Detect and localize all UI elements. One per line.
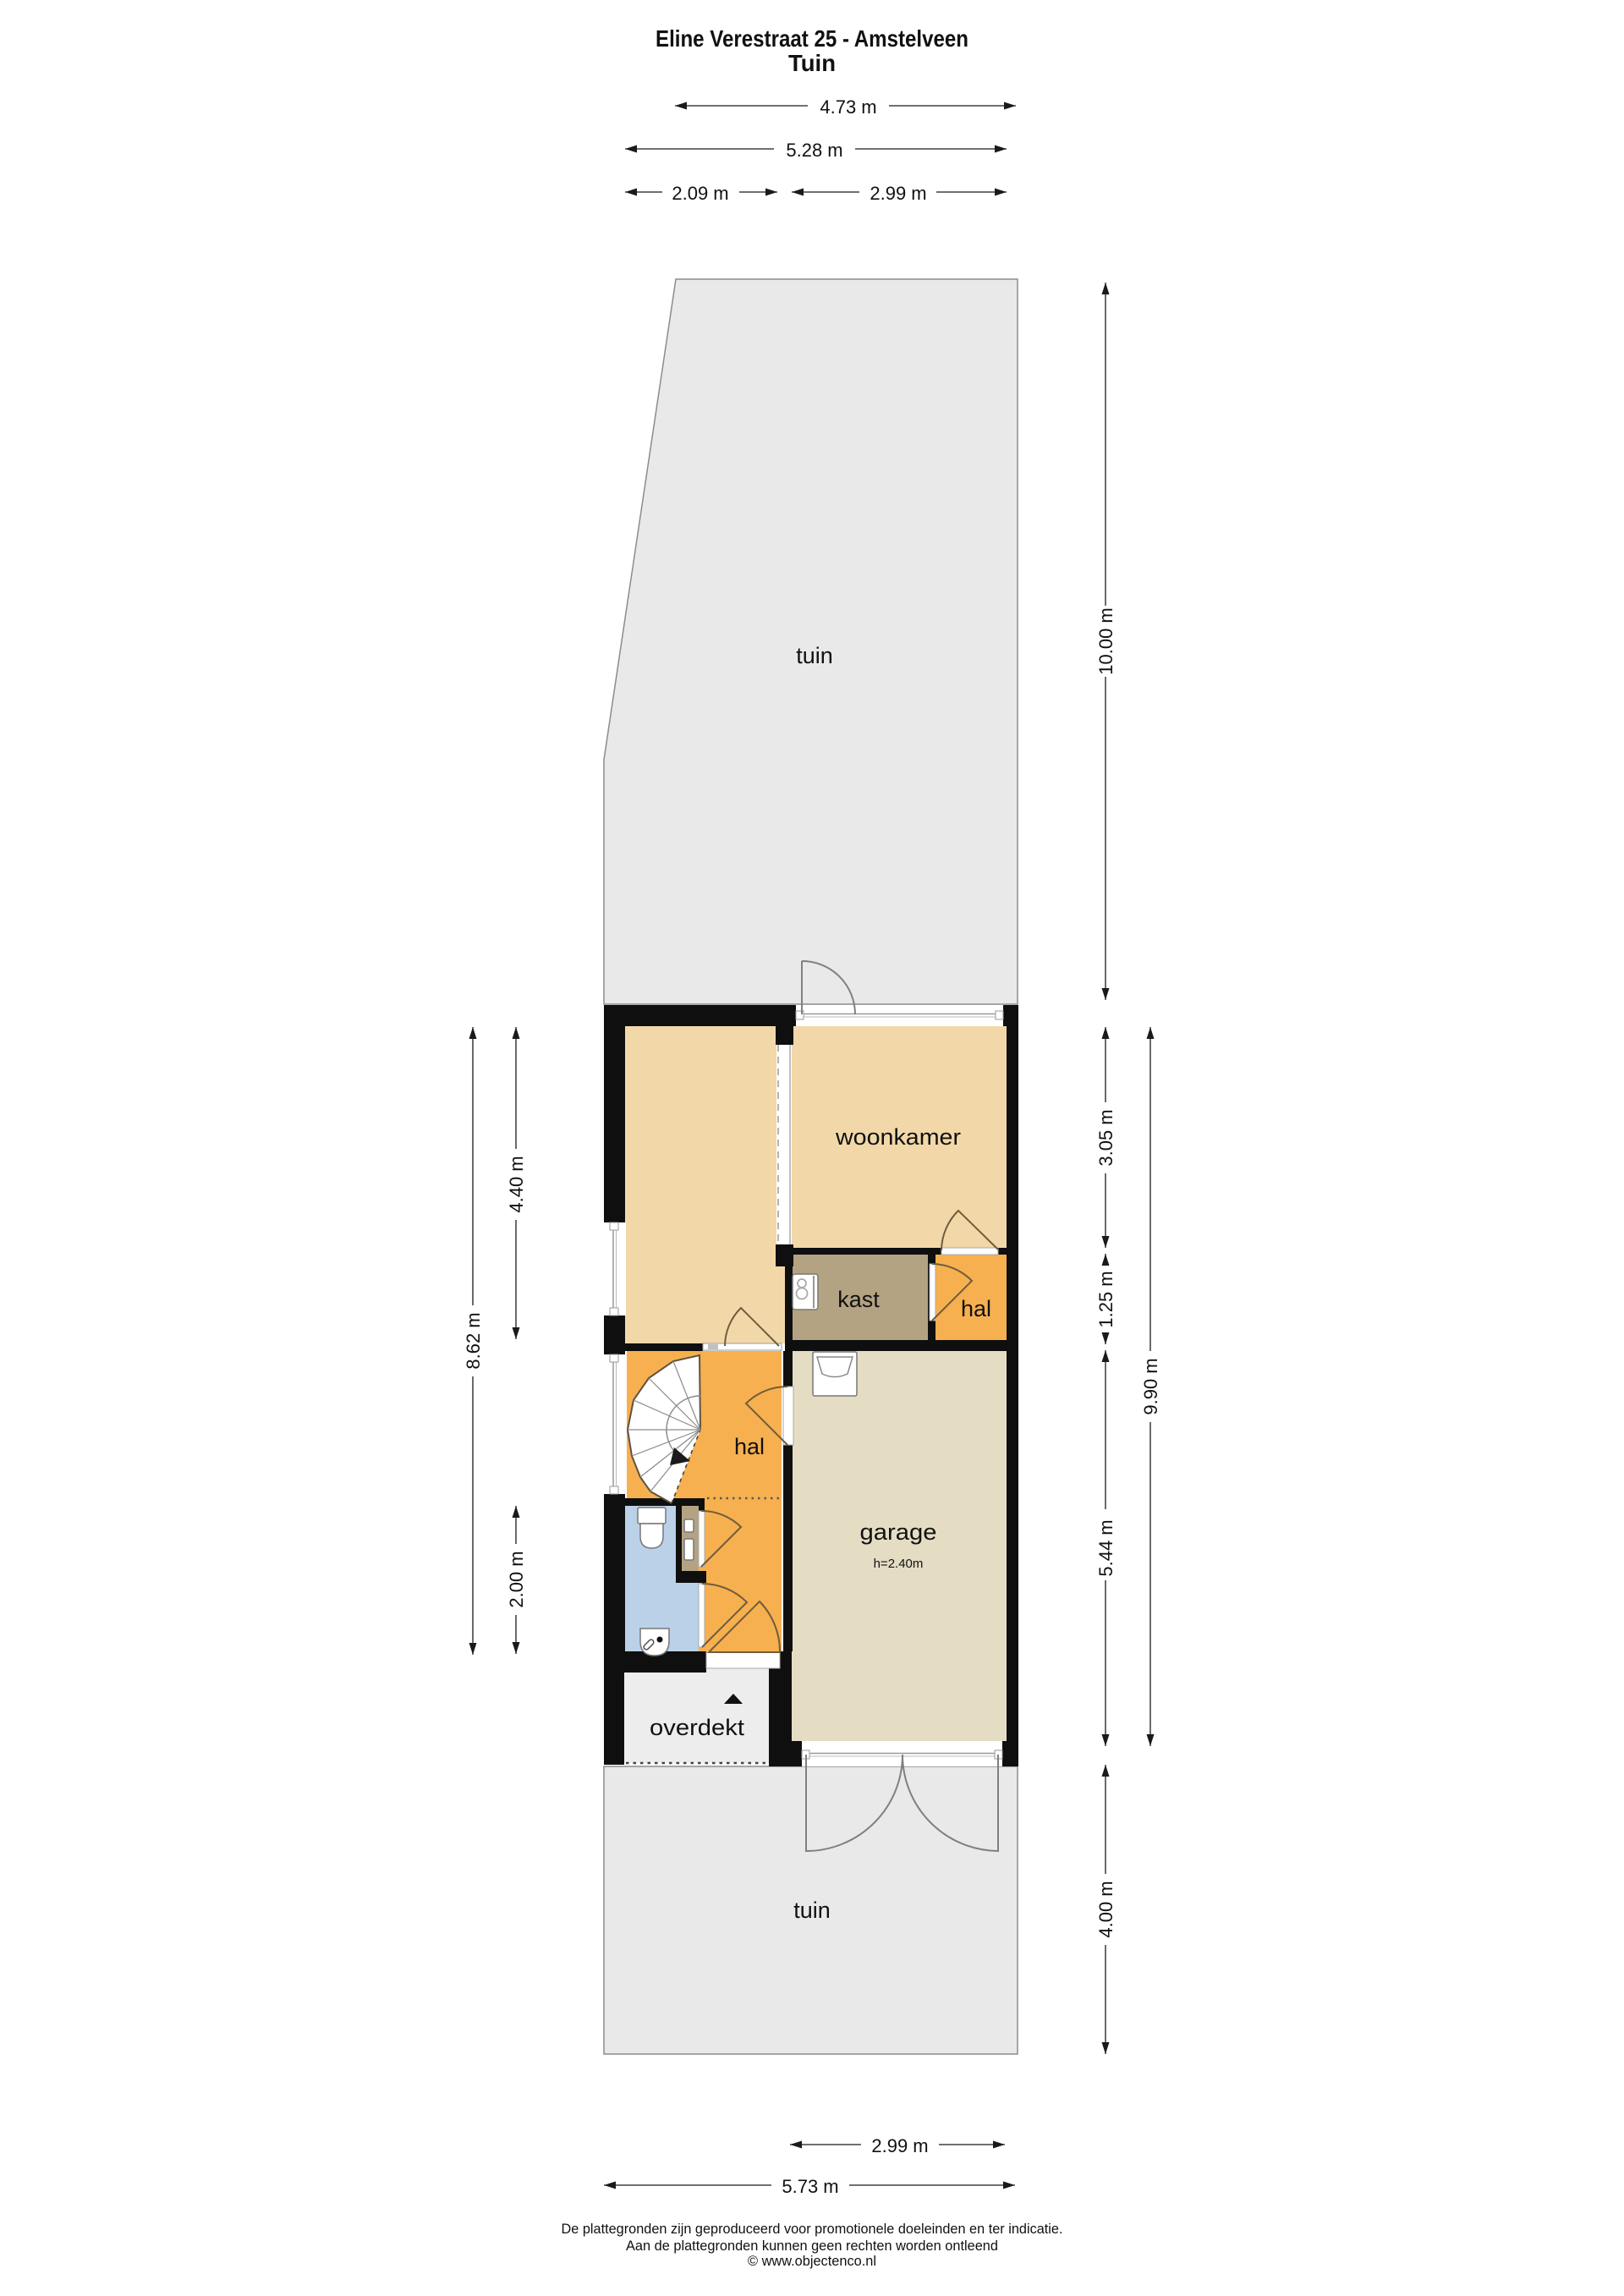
svg-text:kast: kast: [837, 1287, 880, 1312]
svg-text:10.00 m: 10.00 m: [1095, 607, 1116, 675]
svg-text:De plattegronden zijn geproduc: De plattegronden zijn geproduceerd voor …: [562, 2221, 1063, 2237]
svg-text:4.00 m: 4.00 m: [1095, 1881, 1116, 1937]
svg-text:2.00 m: 2.00 m: [506, 1551, 527, 1607]
svg-text:4.40 m: 4.40 m: [506, 1156, 527, 1212]
svg-text:3.05 m: 3.05 m: [1095, 1109, 1116, 1166]
svg-text:2.99 m: 2.99 m: [870, 183, 926, 204]
svg-text:hal: hal: [734, 1434, 765, 1459]
svg-text:5.44 m: 5.44 m: [1095, 1519, 1116, 1576]
svg-text:5.28 m: 5.28 m: [786, 140, 842, 161]
svg-text:© www.objectenco.nl: © www.objectenco.nl: [748, 2253, 876, 2269]
svg-text:h=2.40m: h=2.40m: [874, 1557, 924, 1571]
svg-text:Aan de plattegronden kunnen ge: Aan de plattegronden kunnen geen rechten…: [626, 2238, 998, 2254]
svg-text:hal: hal: [961, 1296, 991, 1321]
svg-text:overdekt: overdekt: [650, 1715, 745, 1740]
svg-text:tuin: tuin: [793, 1898, 831, 1923]
svg-text:1.25 m: 1.25 m: [1095, 1271, 1116, 1327]
svg-text:Tuin: Tuin: [788, 50, 836, 76]
svg-text:5.73 m: 5.73 m: [782, 2176, 838, 2197]
svg-text:8.62 m: 8.62 m: [463, 1312, 484, 1369]
svg-text:tuin: tuin: [796, 643, 833, 668]
svg-text:garage: garage: [860, 1519, 937, 1545]
svg-text:9.90 m: 9.90 m: [1140, 1358, 1161, 1414]
svg-text:2.99 m: 2.99 m: [871, 2135, 928, 2156]
svg-text:2.09 m: 2.09 m: [672, 183, 728, 204]
svg-text:woonkamer: woonkamer: [835, 1124, 961, 1150]
svg-text:4.73 m: 4.73 m: [820, 96, 876, 118]
svg-text:Eline Verestraat 25 - Amstelve: Eline Verestraat 25 - Amstelveen: [656, 25, 968, 52]
